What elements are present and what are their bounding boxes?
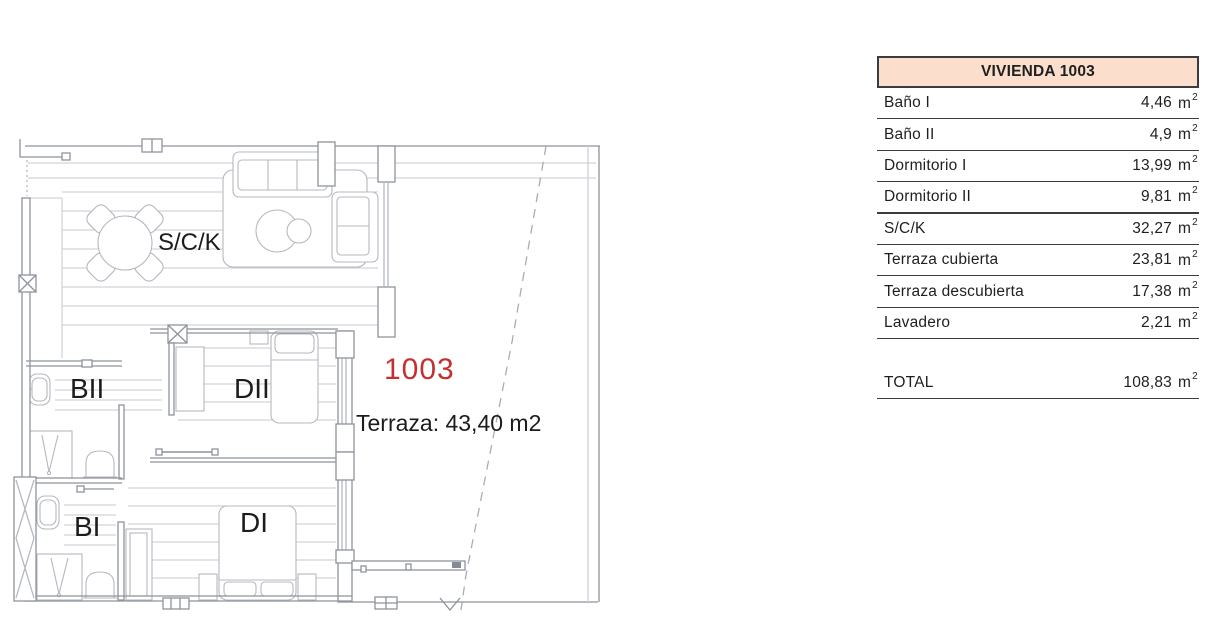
room-label-dorm1: DI <box>240 507 268 538</box>
table-spacer <box>877 339 1199 367</box>
area-table: VIVIENDA 1003 Baño I 4,46 m2 Baño II 4,9… <box>877 56 1199 399</box>
table-row: Terraza descubierta 17,38 m2 <box>877 276 1199 307</box>
toilet <box>83 451 117 477</box>
room-area: 23,81 <box>1132 251 1172 269</box>
floor-plan: S/C/K BII DII BI DI 1003 Terraza: 43,40 … <box>0 0 640 634</box>
room-label: Terraza cubierta <box>884 251 1132 269</box>
shower <box>28 431 72 478</box>
total-label: TOTAL <box>884 374 1123 392</box>
area-unit: m2 <box>1178 313 1198 332</box>
area-unit: m2 <box>1178 156 1198 175</box>
table-row: Baño II 4,9 m2 <box>877 119 1199 150</box>
room-label-sck: S/C/K <box>158 229 221 256</box>
room-label: Terraza descubierta <box>884 283 1132 301</box>
area-unit: m2 <box>1178 125 1198 144</box>
total-area: 108,83 <box>1123 374 1172 392</box>
room-area: 32,27 <box>1132 220 1172 238</box>
room-label: Dormitorio II <box>884 188 1141 206</box>
room-area: 4,9 <box>1150 126 1172 144</box>
dining-table <box>98 216 152 270</box>
area-unit: m2 <box>1178 251 1198 270</box>
room-label: Dormitorio I <box>884 157 1132 175</box>
table-row: S/C/K 32,27 m2 <box>877 214 1199 245</box>
area-unit: m2 <box>1178 187 1198 206</box>
area-table-title: VIVIENDA 1003 <box>981 63 1095 81</box>
room-area: 2,21 <box>1141 314 1172 332</box>
pillow <box>224 582 256 596</box>
room-area: 4,46 <box>1141 94 1172 112</box>
terrace-area-note: Terraza: 43,40 m2 <box>356 410 541 436</box>
room-area: 9,81 <box>1141 188 1172 206</box>
room-label-banio2: BII <box>70 373 104 404</box>
dresser <box>176 347 204 411</box>
table-row: Baño I 4,46 m2 <box>877 88 1199 119</box>
floor-plan-svg: S/C/K BII DII BI DI 1003 Terraza: 43,40 … <box>0 0 640 634</box>
sofa-group <box>223 152 378 267</box>
table-row: Terraza cubierta 23,81 m2 <box>877 245 1199 276</box>
dining-table-set <box>84 202 166 284</box>
table-total-row: TOTAL 108,83 m2 <box>877 367 1199 399</box>
room-label: Baño I <box>884 94 1141 112</box>
room-area: 17,38 <box>1132 283 1172 301</box>
room-label: Baño II <box>884 126 1150 144</box>
room-area: 13,99 <box>1132 157 1172 175</box>
area-unit: m2 <box>1178 282 1198 301</box>
toilet <box>83 572 117 598</box>
area-unit: m2 <box>1178 373 1198 392</box>
terrace-boundary-dashed-line <box>461 146 546 610</box>
room-label-dorm2: DII <box>234 373 270 404</box>
bedroom1-furniture <box>126 506 316 600</box>
table-row: Dormitorio I 13,99 m2 <box>877 151 1199 182</box>
unit-number-label: 1003 <box>384 353 455 386</box>
room-label: Lavadero <box>884 314 1141 332</box>
room-label: S/C/K <box>884 220 1132 238</box>
area-table-header: VIVIENDA 1003 <box>877 56 1199 88</box>
pillow <box>275 334 314 353</box>
table-row: Dormitorio II 9,81 m2 <box>877 182 1199 213</box>
pillow <box>261 582 293 596</box>
area-unit: m2 <box>1178 94 1198 113</box>
table-row: Lavadero 2,21 m2 <box>877 308 1199 339</box>
room-label-banio1: BI <box>74 511 100 542</box>
area-unit: m2 <box>1178 219 1198 238</box>
